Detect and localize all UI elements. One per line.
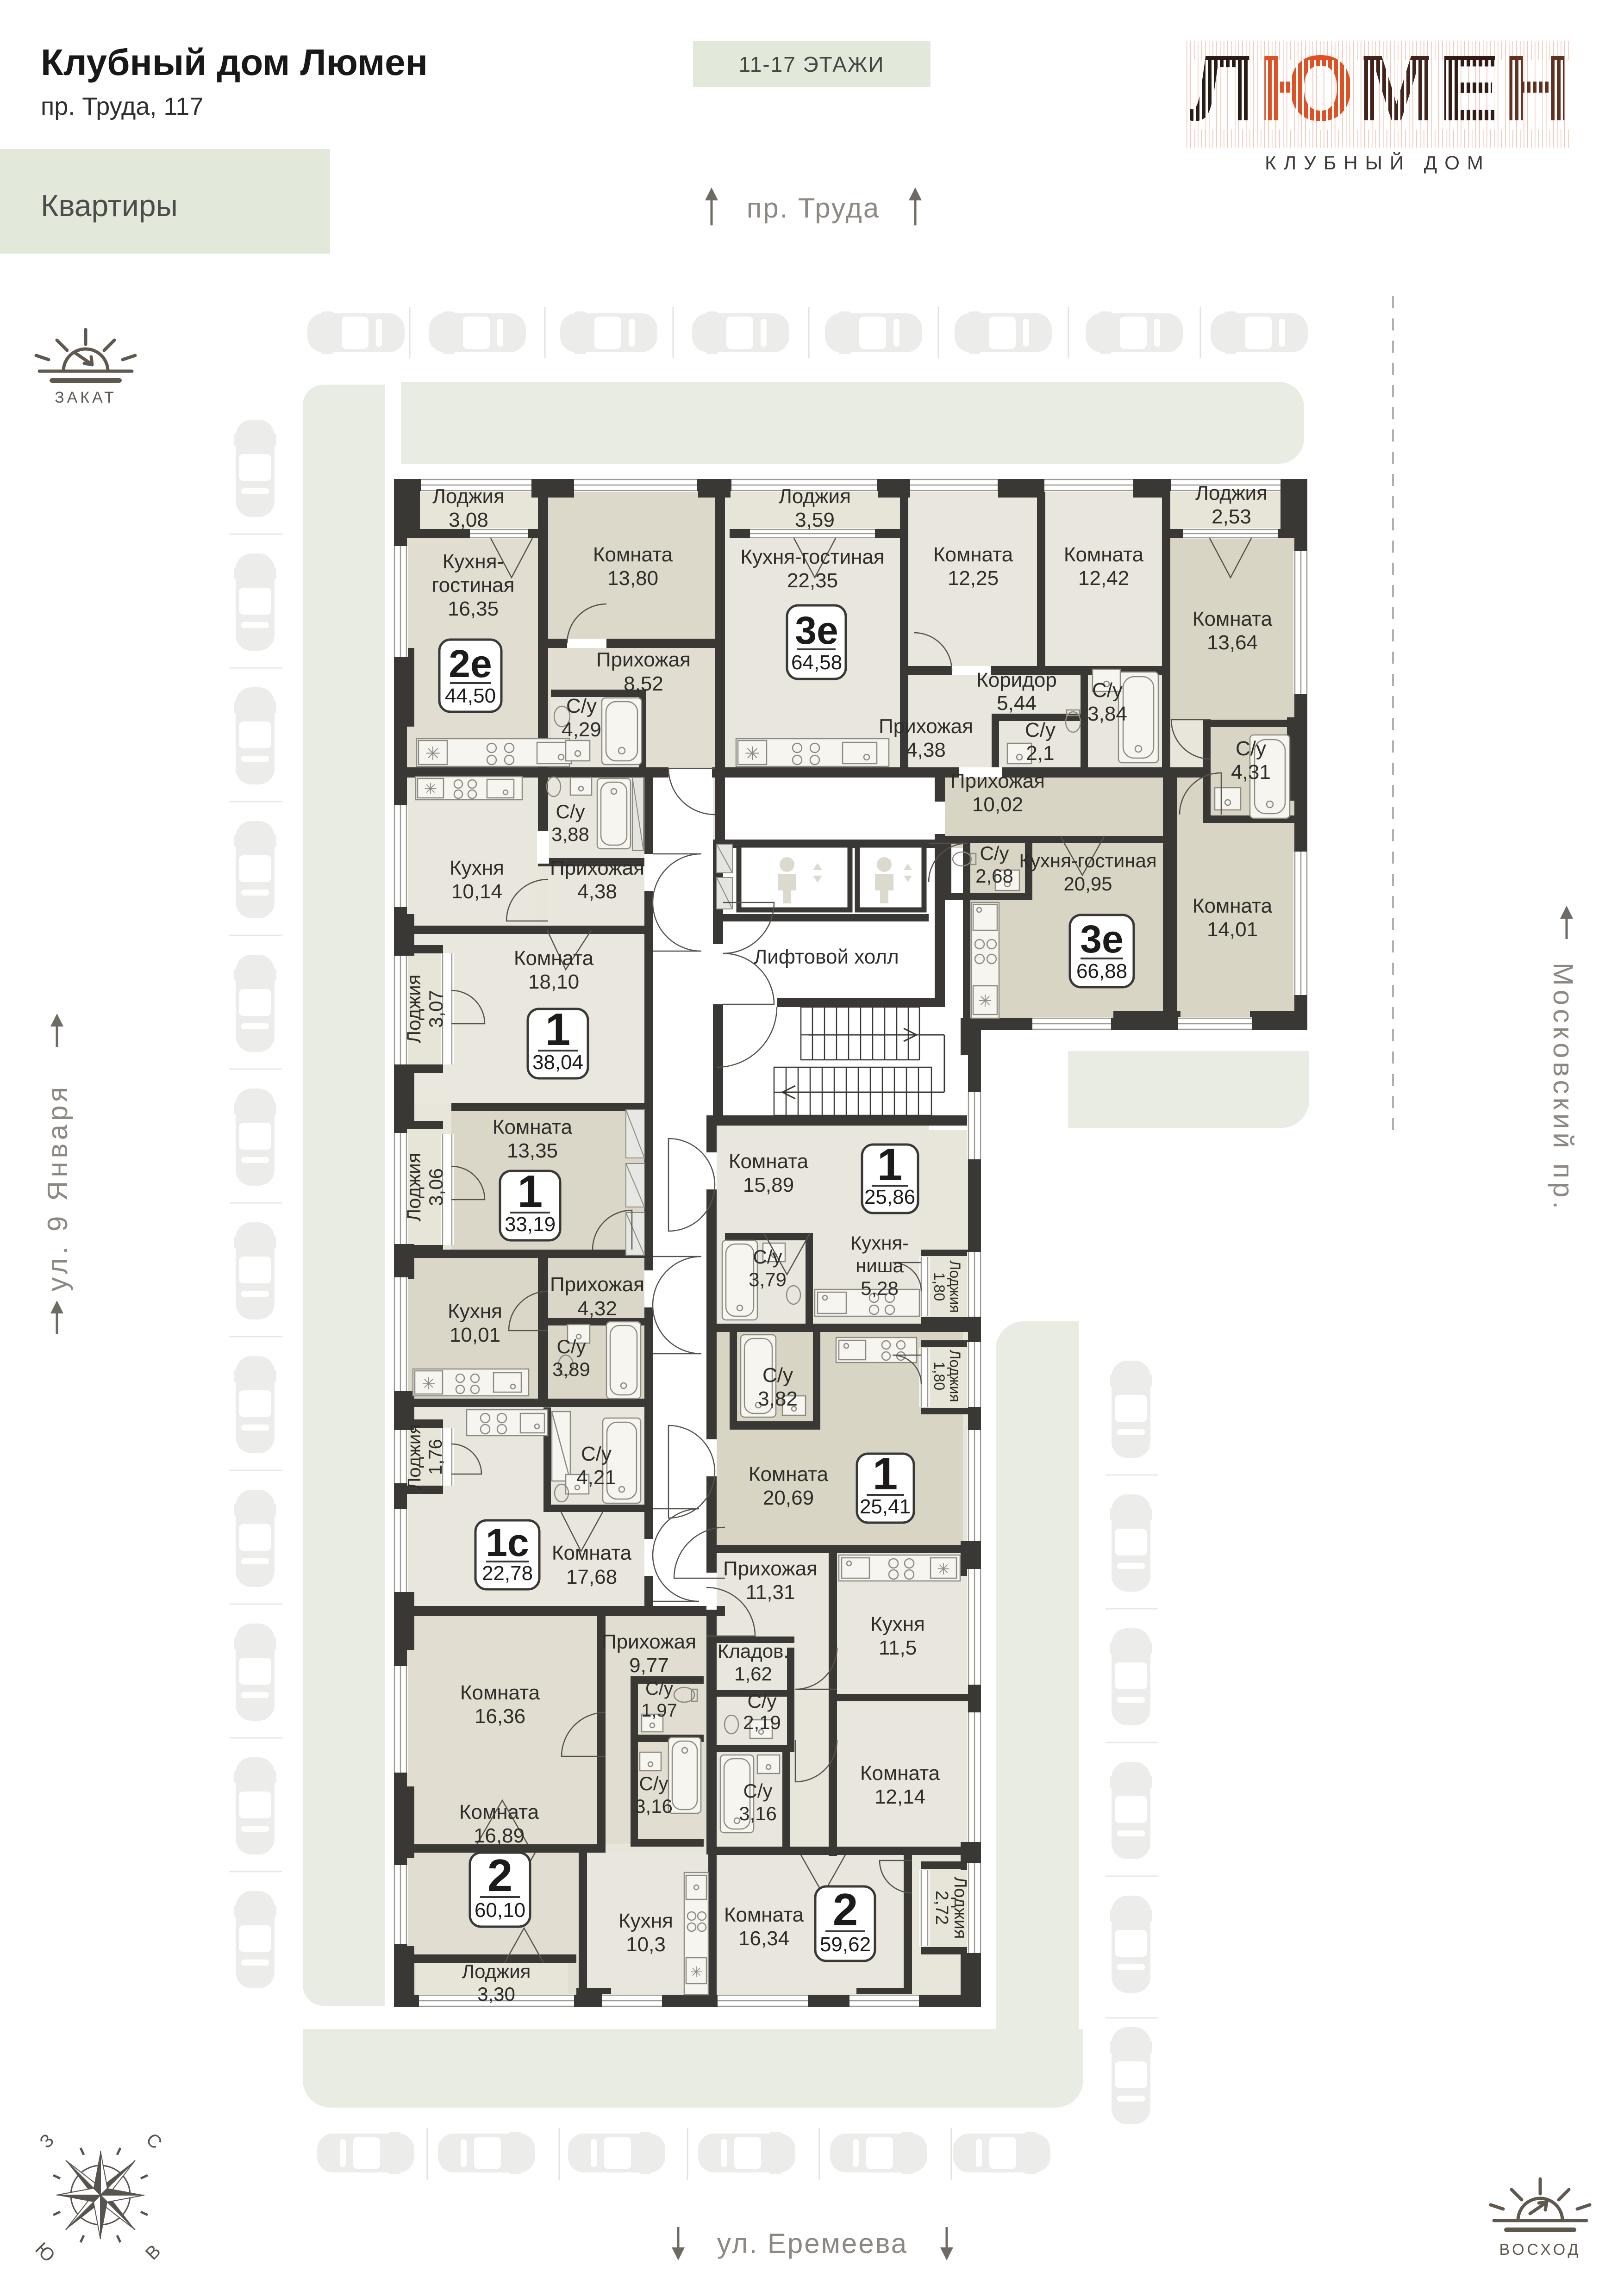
svg-text:3,79: 3,79: [749, 1269, 787, 1290]
svg-text:ВОСХОД: ВОСХОД: [1499, 2241, 1581, 2259]
svg-text:12,14: 12,14: [874, 1786, 925, 1808]
svg-text:Лифтовой холл: Лифтовой холл: [754, 946, 899, 968]
svg-text:С/у: С/у: [581, 1443, 612, 1465]
svg-text:✳: ✳: [425, 744, 441, 764]
svg-text:гостиная: гостиная: [432, 574, 515, 597]
svg-text:3,07: 3,07: [425, 990, 447, 1028]
svg-text:С/у: С/у: [753, 1246, 782, 1268]
svg-text:С/у: С/у: [743, 1780, 773, 1802]
svg-text:15,89: 15,89: [743, 1174, 794, 1196]
svg-text:Комната: Комната: [459, 1801, 539, 1823]
svg-text:С/у: С/у: [1025, 719, 1056, 741]
svg-text:10,01: 10,01: [450, 1324, 500, 1346]
svg-text:Комната: Комната: [933, 543, 1013, 566]
svg-text:2,19: 2,19: [743, 1711, 781, 1733]
svg-text:✳: ✳: [744, 744, 760, 764]
svg-text:25,86: 25,86: [864, 1186, 915, 1208]
svg-text:4,38: 4,38: [577, 880, 617, 903]
svg-text:3,16: 3,16: [739, 1803, 777, 1824]
svg-text:1,97: 1,97: [641, 1700, 677, 1721]
svg-text:Кухня-гостиная: Кухня-гостиная: [740, 546, 884, 568]
svg-text:Комната: Комната: [729, 1150, 809, 1173]
svg-text:Прихожая: Прихожая: [950, 770, 1045, 792]
svg-text:4,38: 4,38: [906, 739, 946, 761]
svg-text:1: 1: [873, 1448, 898, 1499]
svg-text:Прихожая: Прихожая: [596, 648, 691, 671]
svg-text:✳: ✳: [690, 1964, 703, 1980]
svg-text:18,10: 18,10: [528, 971, 579, 993]
svg-text:3е: 3е: [795, 609, 838, 652]
svg-text:Комната: Комната: [1193, 895, 1273, 917]
svg-text:Прихожая: Прихожая: [602, 1630, 696, 1653]
svg-text:Комната: Комната: [460, 1681, 540, 1704]
svg-text:4,31: 4,31: [1231, 761, 1271, 784]
svg-text:1с: 1с: [486, 1521, 529, 1564]
svg-text:1: 1: [545, 1004, 571, 1055]
svg-text:Лоджия: Лоджия: [1195, 482, 1268, 504]
svg-text:✳: ✳: [424, 780, 437, 798]
svg-text:Комната: Комната: [552, 1542, 632, 1564]
svg-text:Комната: Комната: [860, 1762, 940, 1785]
svg-text:С/у: С/у: [748, 1690, 777, 1712]
svg-text:4,32: 4,32: [577, 1297, 617, 1320]
svg-text:Клубный дом Люмен: Клубный дом Люмен: [41, 42, 428, 83]
svg-text:Комната: Комната: [514, 947, 594, 970]
svg-text:3,82: 3,82: [758, 1388, 798, 1410]
svg-text:60,10: 60,10: [475, 1899, 525, 1922]
svg-text:2,53: 2,53: [1212, 505, 1251, 528]
svg-text:44,50: 44,50: [445, 684, 496, 707]
svg-text:9,77: 9,77: [629, 1654, 669, 1677]
svg-text:2,72: 2,72: [932, 1891, 951, 1925]
svg-text:22,35: 22,35: [787, 569, 838, 592]
svg-text:1,62: 1,62: [734, 1663, 772, 1685]
svg-text:С/у: С/у: [557, 1336, 586, 1357]
svg-text:Кухня: Кухня: [450, 857, 504, 879]
svg-text:3,30: 3,30: [477, 1983, 515, 2005]
svg-text:С/у: С/у: [639, 1773, 668, 1794]
svg-text:✳: ✳: [937, 1561, 950, 1578]
svg-text:8,52: 8,52: [624, 672, 663, 695]
svg-text:Прихожая: Прихожая: [550, 1273, 644, 1296]
svg-text:Лоджия: Лоджия: [947, 1350, 963, 1402]
svg-text:20,95: 20,95: [1063, 873, 1112, 895]
svg-text:2,68: 2,68: [975, 865, 1013, 887]
svg-text:11,5: 11,5: [879, 1636, 917, 1659]
svg-text:Прихожая: Прихожая: [879, 715, 973, 738]
svg-text:2: 2: [487, 1850, 513, 1901]
svg-text:14,01: 14,01: [1207, 918, 1258, 941]
svg-text:11-17 ЭТАЖИ: 11-17 ЭТАЖИ: [739, 52, 885, 76]
svg-text:Лоджия: Лоджия: [404, 1424, 425, 1490]
svg-text:пр. Труда, 117: пр. Труда, 117: [41, 93, 204, 120]
svg-text:1,76: 1,76: [425, 1439, 446, 1475]
svg-text:59,62: 59,62: [820, 1933, 871, 1956]
svg-text:10,3: 10,3: [626, 1933, 666, 1956]
svg-text:3,06: 3,06: [425, 1168, 447, 1206]
svg-text:1: 1: [877, 1139, 903, 1190]
svg-text:16,89: 16,89: [474, 1824, 525, 1847]
svg-text:17,68: 17,68: [566, 1566, 617, 1588]
svg-text:ул. 9 Января: ул. 9 Января: [42, 1083, 73, 1291]
svg-text:11,31: 11,31: [746, 1581, 795, 1604]
svg-text:16,36: 16,36: [475, 1705, 525, 1728]
svg-text:Комната: Комната: [1064, 543, 1144, 566]
svg-text:✳: ✳: [978, 991, 992, 1010]
svg-text:25,41: 25,41: [860, 1495, 911, 1518]
svg-text:3,16: 3,16: [635, 1795, 673, 1817]
svg-text:Лоджия: Лоджия: [779, 485, 851, 508]
svg-text:2,1: 2,1: [1026, 742, 1054, 765]
svg-text:64,58: 64,58: [791, 651, 842, 674]
svg-text:Лоджия: Лоджия: [432, 485, 505, 508]
svg-text:33,19: 33,19: [505, 1213, 556, 1236]
svg-text:3,08: 3,08: [449, 509, 488, 531]
svg-text:Кухня: Кухня: [618, 1910, 673, 1932]
svg-text:Комната: Комната: [493, 1116, 573, 1139]
svg-text:3,89: 3,89: [552, 1358, 590, 1380]
svg-text:Кухня-гостиная: Кухня-гостиная: [1019, 850, 1156, 871]
svg-text:Комната: Комната: [749, 1463, 829, 1486]
svg-text:2: 2: [833, 1884, 858, 1935]
svg-text:С/у: С/у: [1236, 737, 1266, 760]
svg-text:Лоджия: Лоджия: [462, 1960, 531, 1982]
svg-text:ниша: ниша: [856, 1255, 904, 1276]
svg-text:С/у: С/у: [556, 801, 585, 822]
svg-text:66,88: 66,88: [1076, 960, 1127, 983]
svg-text:4,29: 4,29: [562, 718, 601, 741]
svg-text:3,59: 3,59: [795, 509, 835, 531]
svg-text:Квартиры: Квартиры: [41, 188, 178, 223]
svg-text:22,78: 22,78: [482, 1562, 533, 1585]
svg-text:Прихожая: Прихожая: [723, 1557, 818, 1580]
svg-text:Лоджия: Лоджия: [950, 1877, 970, 1939]
svg-text:38,04: 38,04: [532, 1051, 583, 1074]
svg-text:16,34: 16,34: [738, 1927, 789, 1950]
svg-text:10,14: 10,14: [451, 880, 502, 903]
svg-text:3,88: 3,88: [551, 823, 589, 845]
svg-text:С/у: С/у: [566, 695, 597, 717]
svg-text:КЛУБНЫЙ ДОМ: КЛУБНЫЙ ДОМ: [1265, 151, 1491, 174]
svg-text:20,69: 20,69: [763, 1487, 814, 1509]
svg-text:ул. Еремеева: ул. Еремеева: [717, 2228, 908, 2259]
svg-text:Кухня-: Кухня-: [443, 550, 504, 573]
svg-text:Кухня-: Кухня-: [850, 1232, 909, 1254]
svg-text:12,42: 12,42: [1078, 567, 1129, 590]
svg-text:ЗАКАТ: ЗАКАТ: [55, 389, 117, 406]
svg-text:13,64: 13,64: [1207, 631, 1258, 654]
svg-text:1,80: 1,80: [931, 1362, 948, 1390]
svg-text:С/у: С/у: [1092, 679, 1123, 702]
svg-text:Комната: Комната: [1193, 608, 1273, 630]
svg-text:3е: 3е: [1080, 917, 1123, 961]
svg-text:4,21: 4,21: [576, 1466, 616, 1489]
svg-text:Коридор: Коридор: [976, 669, 1057, 691]
svg-text:2е: 2е: [449, 642, 492, 685]
svg-text:Кухня: Кухня: [870, 1613, 925, 1636]
svg-text:С/у: С/у: [762, 1364, 793, 1387]
svg-text:1,80: 1,80: [931, 1272, 948, 1301]
svg-text:13,80: 13,80: [607, 567, 658, 590]
svg-text:5,44: 5,44: [997, 692, 1037, 715]
svg-text:С/у: С/у: [645, 1679, 673, 1699]
svg-text:Кухня: Кухня: [448, 1300, 502, 1323]
svg-text:Московский пр.: Московский пр.: [1548, 963, 1579, 1213]
svg-text:13,35: 13,35: [507, 1139, 558, 1162]
svg-text:12,25: 12,25: [948, 567, 999, 590]
svg-text:Кладов.: Кладов.: [718, 1640, 789, 1662]
svg-text:Прихожая: Прихожая: [550, 857, 644, 879]
svg-text:Лоджия: Лоджия: [947, 1260, 963, 1313]
svg-text:5,28: 5,28: [861, 1277, 899, 1299]
svg-text:1: 1: [518, 1166, 543, 1217]
svg-text:С/у: С/у: [980, 842, 1009, 864]
svg-text:3,84: 3,84: [1087, 703, 1127, 725]
svg-text:пр. Труда: пр. Труда: [747, 193, 881, 224]
svg-text:Комната: Комната: [724, 1904, 804, 1926]
svg-text:Лоджия: Лоджия: [403, 975, 425, 1044]
svg-text:Комната: Комната: [593, 543, 673, 566]
svg-text:10,02: 10,02: [972, 793, 1023, 816]
svg-text:Лоджия: Лоджия: [403, 1153, 425, 1222]
svg-text:✳: ✳: [422, 1374, 436, 1393]
svg-text:16,35: 16,35: [448, 597, 499, 620]
